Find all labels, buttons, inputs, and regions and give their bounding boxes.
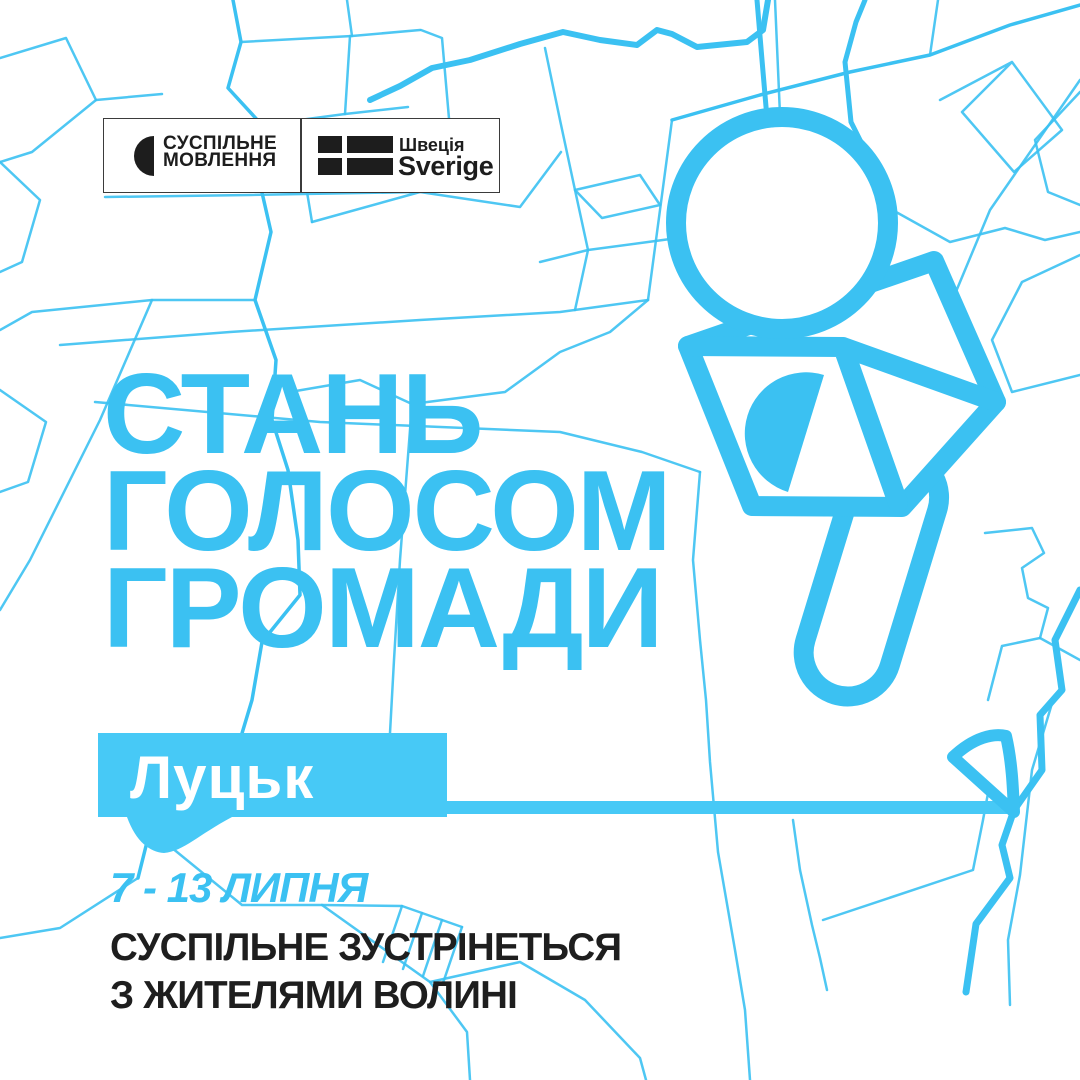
event-dates: 7 - 13 ЛИПНЯ bbox=[110, 864, 367, 912]
suspilne-wordmark-line2: МОВЛЕННЯ bbox=[163, 153, 277, 170]
city-name: Луцьк bbox=[130, 743, 314, 812]
event-description: СУСПІЛЬНЕ ЗУСТРІНЕТЬСЯ З ЖИТЕЛЯМИ ВОЛИНІ bbox=[110, 924, 621, 1019]
logo-divider bbox=[300, 119, 302, 192]
logo-bar: СУСПІЛЬНЕ МОВЛЕННЯ Швеція Sverige bbox=[103, 118, 500, 193]
banner-pointer-bar bbox=[440, 801, 1016, 814]
poster-canvas: СТАНЬ ГОЛОСОМ ГРОМАДИ СУСПІЛЬНЕ МОВЛЕННЯ bbox=[0, 0, 1080, 1080]
arrowhead-icon bbox=[953, 735, 1014, 812]
event-description-line2: З ЖИТЕЛЯМИ ВОЛИНІ bbox=[110, 972, 621, 1020]
sweden-flag-icon bbox=[318, 136, 398, 176]
microphone-head bbox=[676, 117, 888, 329]
event-description-line1: СУСПІЛЬНЕ ЗУСТРІНЕТЬСЯ bbox=[110, 924, 621, 972]
banner-tail bbox=[127, 817, 232, 853]
sweden-label-swedish: Sverige bbox=[398, 151, 493, 182]
suspilne-wordmark: СУСПІЛЬНЕ МОВЛЕННЯ bbox=[163, 136, 277, 169]
suspilne-halfdisc-icon bbox=[132, 134, 156, 178]
city-banner: Луцьк bbox=[98, 733, 447, 817]
